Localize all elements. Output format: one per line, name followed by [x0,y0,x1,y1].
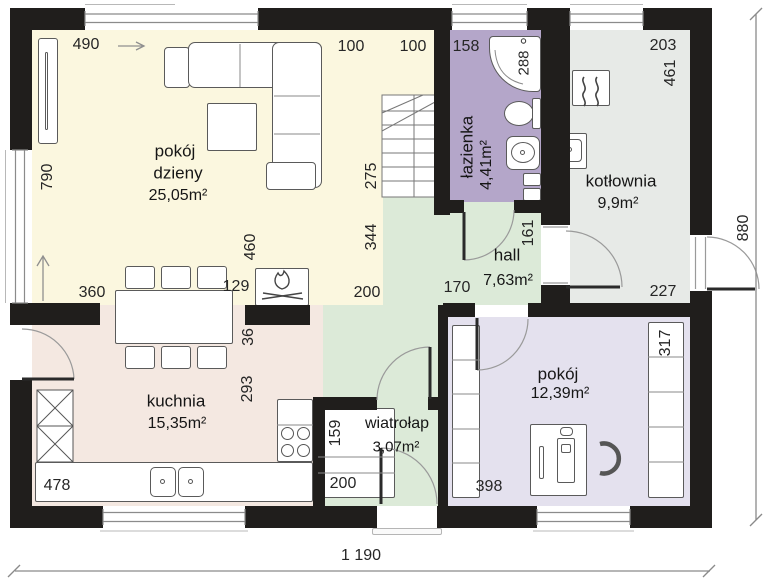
wall-segment [428,397,438,410]
wall-segment [690,291,712,528]
sink-drain-dot [520,150,525,155]
dim-460: 460 [243,234,259,261]
room-label-vestibule: wiatrołap [365,416,429,432]
wall-segment [438,305,448,506]
dim-293: 293 [240,376,256,403]
dim-478: 478 [44,478,71,494]
room-area-vestibule: 3,07m² [373,440,420,455]
room-area-bathroom: 4,41m² [479,140,495,190]
room-label-kitchen: kuchnia [147,393,206,410]
room-area-boiler-room: 9,9m² [598,196,639,212]
dim-200-closet: 200 [330,476,357,492]
wall-segment [10,506,103,528]
dim-100a: 100 [338,39,365,55]
desk-mouse [560,427,573,436]
radiator-fin [45,52,48,130]
wall-segment [10,8,32,150]
room-label-bathroom: łazienka [459,116,476,178]
dim-275: 275 [364,163,380,190]
dim-159: 159 [328,420,344,447]
dining-chair [125,346,155,369]
entrance-threshold [372,528,442,535]
dim-200-hall-opening: 200 [354,285,381,301]
dining-chair [197,346,227,369]
toilet-tank [532,98,541,129]
washer-box [523,173,541,186]
room-area-kitchen: 15,35m² [148,416,207,432]
wall-segment [313,397,325,506]
room-label-boiler-room: kotłownia [586,173,657,190]
radiator [38,38,58,144]
dim-288: 288 [517,50,532,75]
dim-total-width-1190: 1 190 [341,548,381,564]
dim-317: 317 [658,330,674,357]
wall-segment [690,8,712,235]
stove-burner [297,427,310,440]
dim-170: 170 [444,280,471,296]
room-area-hall: 7,63m² [483,273,533,289]
wall-segment [313,397,377,410]
stove-burner [281,427,294,440]
dim-129: 129 [223,279,250,295]
dim-461: 461 [663,60,679,87]
coffee-table [207,103,257,151]
dining-chair [161,266,191,289]
room-area-living: 25,05m² [149,188,208,204]
fireplace [255,268,309,306]
wall-segment [434,30,450,215]
room-label-bedroom: pokój [538,366,579,383]
room-label-living-line1: pokój [155,143,196,160]
dim-490: 490 [73,37,100,53]
wall-segment [514,200,541,213]
sink-drain-dot [160,479,165,484]
wall-segment [437,506,537,528]
boiler [572,70,610,106]
dim-790: 790 [40,164,56,191]
bedroom-wardrobe [452,325,480,498]
wall-segment [258,8,452,30]
sofa-left-cushion [164,47,190,88]
dining-chair [125,266,155,289]
dim-100b: 100 [400,39,427,55]
dim-total-height-880: 880 [736,215,752,242]
stove-burner [281,444,294,457]
sink-drain-dot [188,479,193,484]
room-label-hall: hall [494,247,520,264]
dining-chair [161,346,191,369]
dim-344: 344 [364,224,380,251]
dim-227: 227 [650,284,677,300]
desk-tower-detail [561,444,571,453]
wall-segment [245,305,310,325]
dining-table [115,290,233,344]
room-area-bedroom: 12,39m² [531,386,590,402]
floor-plan: pokój dzieny 25,05m² kuchnia 15,35m² łaz… [0,0,766,583]
wall-segment [10,303,100,325]
wall-segment [528,303,690,317]
dim-203: 203 [650,38,677,54]
dim-360: 360 [79,285,106,301]
desk-monitor [539,446,544,479]
wall-segment [541,30,570,225]
room-label-living-line2: dzieny [153,165,202,182]
toilet-bowl [504,101,534,126]
dim-161: 161 [521,220,537,247]
dim-36: 36 [241,328,257,346]
dim-158: 158 [453,39,480,55]
stove-burner [297,444,310,457]
wall-segment [527,8,570,30]
sofa-end-cushion [266,162,316,190]
wall-segment [245,506,377,528]
wall-segment [434,200,464,213]
dim-398: 398 [476,479,503,495]
